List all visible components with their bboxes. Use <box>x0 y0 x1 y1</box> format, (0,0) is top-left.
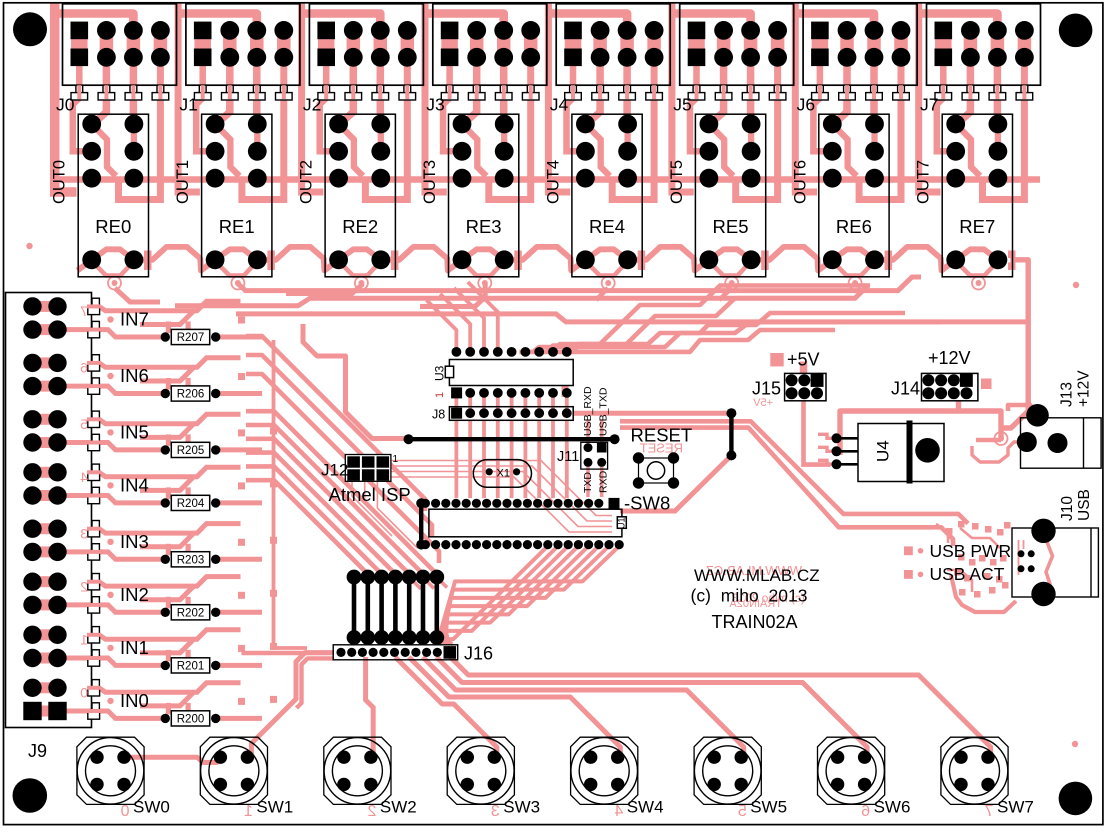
svg-text:SW1: SW1 <box>256 797 293 816</box>
svg-text:+12V: +12V <box>1076 370 1093 407</box>
svg-text:IN5: IN5 <box>120 421 149 442</box>
svg-text:1: 1 <box>80 631 88 647</box>
svg-text:1: 1 <box>244 803 253 820</box>
svg-text:SW5: SW5 <box>750 797 787 816</box>
svg-text:J8: J8 <box>432 408 445 422</box>
svg-text:Atmel ISP: Atmel ISP <box>329 484 411 505</box>
svg-text:IN0: IN0 <box>120 690 149 711</box>
svg-text:J6: J6 <box>797 95 815 115</box>
svg-text:4: 4 <box>614 803 623 820</box>
svg-text:USB_RXD: USB_RXD <box>582 386 594 436</box>
svg-text:J13: J13 <box>1059 382 1076 407</box>
svg-text:J10: J10 <box>1059 496 1076 521</box>
svg-text:IN7: IN7 <box>120 309 149 330</box>
svg-text:USB PWR: USB PWR <box>930 541 1012 561</box>
svg-text:1: 1 <box>434 392 446 398</box>
svg-text:J14: J14 <box>891 379 920 399</box>
svg-text:X1: X1 <box>497 468 510 480</box>
svg-text:R203: R203 <box>177 555 205 567</box>
svg-text:SW0: SW0 <box>133 797 170 816</box>
svg-text:RE2: RE2 <box>342 216 378 237</box>
svg-text:+5V: +5V <box>752 397 773 409</box>
svg-text:OUT5: OUT5 <box>668 160 686 204</box>
svg-text:R201: R201 <box>177 661 205 673</box>
svg-text:-SW8: -SW8 <box>624 493 670 514</box>
svg-text:J2: J2 <box>303 95 321 115</box>
svg-text:USB_TXD: USB_TXD <box>597 387 609 436</box>
svg-text:RE5: RE5 <box>713 216 749 237</box>
svg-text:(c) miho 2013: (c) miho 2013 <box>691 586 808 606</box>
svg-text:SW3: SW3 <box>503 797 540 816</box>
svg-text:RE1: RE1 <box>219 216 255 237</box>
svg-text:OUT0: OUT0 <box>51 160 69 204</box>
svg-text:OUT4: OUT4 <box>544 160 562 204</box>
svg-text:RE4: RE4 <box>589 216 625 237</box>
svg-text:J9: J9 <box>28 741 47 761</box>
svg-text:TXD: TXD <box>582 472 594 493</box>
svg-text:1: 1 <box>393 454 399 465</box>
svg-text:WWW.MLAB.CZ: WWW.MLAB.CZ <box>694 566 820 585</box>
svg-text:7: 7 <box>985 803 994 820</box>
svg-text:R206: R206 <box>177 389 205 401</box>
svg-text:RXD: RXD <box>597 470 609 493</box>
svg-text:R202: R202 <box>177 608 205 620</box>
svg-text:3: 3 <box>491 803 500 820</box>
svg-text:TRAIN02A: TRAIN02A <box>712 612 798 632</box>
svg-text:OUT3: OUT3 <box>421 160 439 204</box>
svg-text:RE0: RE0 <box>95 216 131 237</box>
svg-text:J11: J11 <box>557 449 579 465</box>
svg-text:J0: J0 <box>56 95 75 115</box>
svg-text:J1: J1 <box>179 95 197 115</box>
svg-text:SW7: SW7 <box>997 797 1034 816</box>
svg-text:4: 4 <box>80 469 88 485</box>
svg-text:OUT6: OUT6 <box>791 160 809 204</box>
svg-text:RE6: RE6 <box>836 216 872 237</box>
svg-text:7: 7 <box>80 303 88 319</box>
svg-text:J15: J15 <box>752 379 781 399</box>
svg-text:2: 2 <box>80 578 88 594</box>
svg-text:+12V: +12V <box>928 348 971 368</box>
svg-text:IN3: IN3 <box>120 531 149 552</box>
svg-text:SW6: SW6 <box>874 797 911 816</box>
svg-text:R205: R205 <box>177 445 205 457</box>
svg-text:U1: U1 <box>617 517 627 529</box>
svg-text:J5: J5 <box>673 95 691 115</box>
svg-text:J16: J16 <box>464 644 493 664</box>
svg-text:SW4: SW4 <box>627 797 664 816</box>
svg-text:IN2: IN2 <box>120 584 149 605</box>
svg-text:+5V: +5V <box>787 350 820 370</box>
svg-text:U4: U4 <box>874 440 893 462</box>
svg-text:0: 0 <box>121 803 130 820</box>
svg-text:3: 3 <box>80 525 88 541</box>
svg-text:2: 2 <box>367 803 376 820</box>
svg-text:IN6: IN6 <box>120 365 149 386</box>
svg-text:J7: J7 <box>920 95 938 115</box>
svg-text:IN1: IN1 <box>120 637 149 658</box>
svg-text:R207: R207 <box>177 332 205 344</box>
svg-text:6: 6 <box>861 803 870 820</box>
svg-text:5: 5 <box>738 803 747 820</box>
svg-text:0: 0 <box>80 684 88 700</box>
svg-text:6: 6 <box>80 360 88 376</box>
svg-text:IN4: IN4 <box>120 474 149 495</box>
svg-text:J12: J12 <box>321 461 348 480</box>
svg-text:U3: U3 <box>433 365 447 381</box>
svg-text:RE3: RE3 <box>466 216 502 237</box>
svg-text:OUT7: OUT7 <box>915 160 933 204</box>
svg-text:OUT2: OUT2 <box>298 160 316 204</box>
svg-text:USB: USB <box>1076 489 1093 521</box>
svg-text:USB ACT: USB ACT <box>930 564 1005 584</box>
svg-text:J4: J4 <box>550 95 569 115</box>
svg-text:OUT1: OUT1 <box>174 160 192 204</box>
svg-text:SW2: SW2 <box>380 797 417 816</box>
svg-text:R204: R204 <box>177 498 205 510</box>
svg-text:R200: R200 <box>177 714 205 726</box>
svg-text:J3: J3 <box>426 95 444 115</box>
svg-text:5: 5 <box>80 416 88 432</box>
svg-text:RE7: RE7 <box>959 216 995 237</box>
